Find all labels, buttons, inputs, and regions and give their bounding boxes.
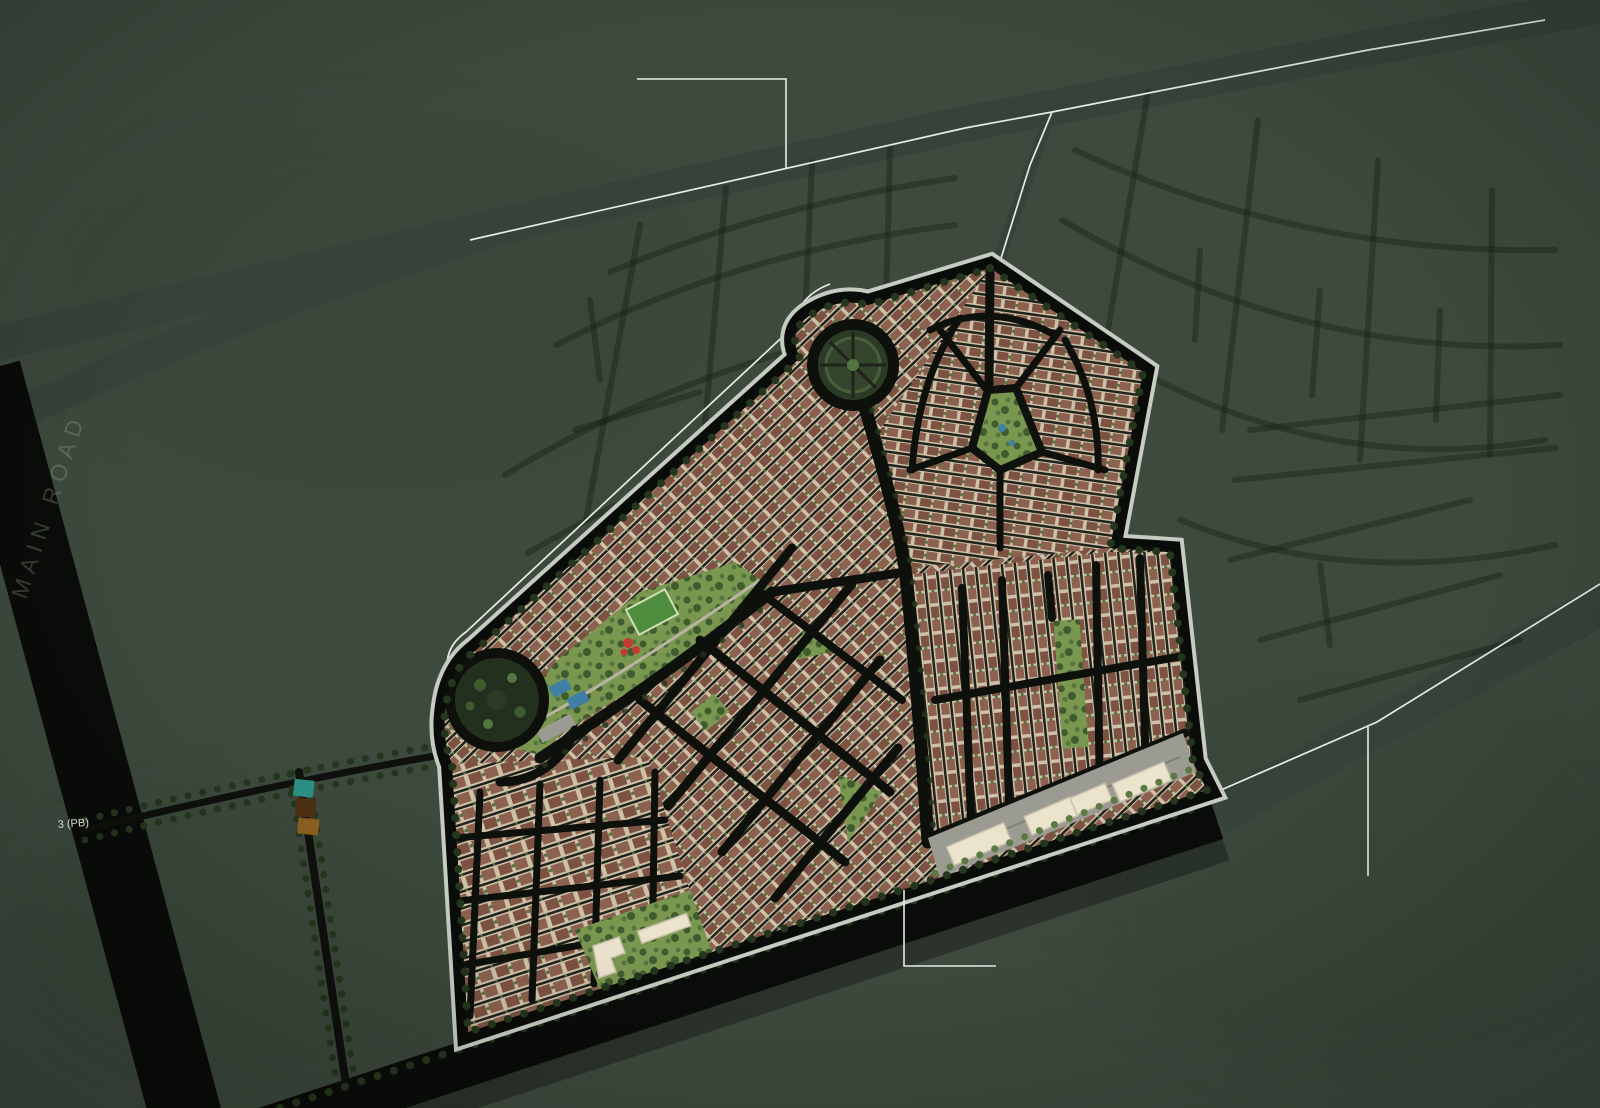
- masterplan-map: MAIN ROAD 3 (PB): [0, 0, 1600, 1108]
- teal-parcel-swatch: [293, 779, 315, 798]
- ochre-parcel-swatch: [297, 817, 320, 835]
- north-roundabout: [807, 319, 899, 411]
- road-marker-label: 3 (PB): [57, 817, 89, 831]
- brown-parcel-swatch: [295, 797, 317, 818]
